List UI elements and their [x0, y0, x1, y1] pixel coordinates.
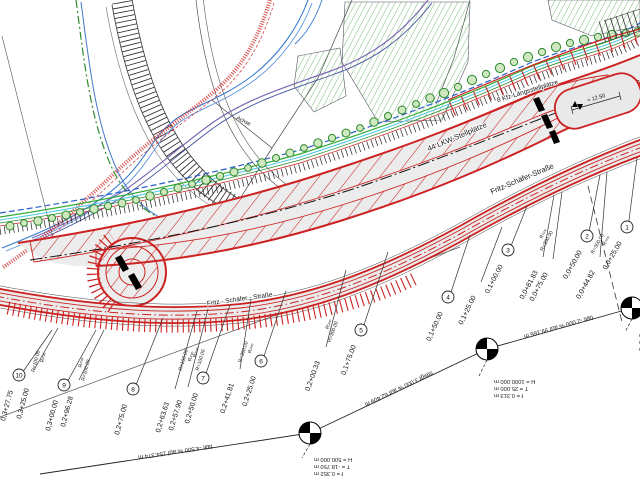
- station-label: 0,2+96.28: [60, 396, 75, 428]
- tree-icon: [398, 106, 406, 114]
- tree-icon: [273, 155, 280, 162]
- tree-icon: [495, 63, 504, 72]
- tree-icon: [49, 215, 56, 222]
- tree-icon: [579, 35, 588, 44]
- svg-text:f = 0.313 m: f = 0.313 m: [494, 392, 523, 398]
- tree-icon: [594, 33, 601, 40]
- tree-icon: [439, 88, 448, 97]
- station-number: 3: [506, 247, 510, 254]
- tree-icon: [161, 189, 168, 196]
- tree-icon: [230, 168, 238, 176]
- station-label: 0,1+00.00: [484, 264, 505, 295]
- tree-icon: [104, 202, 111, 209]
- tree-icon: [413, 101, 420, 108]
- svg-text:f = 0.352 m: f = 0.352 m: [314, 470, 343, 476]
- station-circle: 2: [581, 230, 593, 242]
- station-label: 0,3+00.00: [45, 400, 60, 432]
- tree-icon: [189, 181, 196, 188]
- tree-icon: [426, 94, 434, 102]
- tree-icon: [245, 165, 252, 172]
- station-number: 9: [62, 382, 66, 389]
- tree-icon: [385, 113, 392, 120]
- benchmark-symbol: [299, 422, 321, 444]
- site-plan-sheet: ≈ 12.50 10 0,3+27.75 0,3+25.00 R=100.00 …: [0, 0, 640, 480]
- station-circle: 1: [621, 221, 633, 233]
- svg-text:T = 25.000 m: T = 25.000 m: [494, 385, 528, 391]
- tree-icon: [258, 159, 266, 167]
- tree-icon: [133, 197, 140, 204]
- tree-icon: [314, 139, 322, 147]
- station-label: 0,3+25.00: [16, 388, 31, 420]
- station-label: 0,2+41.81: [220, 382, 236, 414]
- station-number: 7: [201, 375, 205, 382]
- gradient-label: fällt -4.500 % auf 154.374 m: [138, 442, 213, 459]
- station-number: 8: [131, 386, 135, 393]
- station-label: 0,2+75.00: [114, 404, 129, 436]
- svg-text:T = -18.750 m: T = -18.750 m: [314, 463, 350, 469]
- tree-icon: [510, 58, 517, 65]
- tree-icon: [538, 48, 545, 55]
- tree-icon: [202, 176, 210, 184]
- station-number: 10: [15, 372, 23, 379]
- station-label: 0,1+50.00: [426, 311, 445, 343]
- station-circle: 3: [502, 244, 514, 256]
- tree-icon: [77, 209, 84, 216]
- station-circle: 10: [13, 369, 25, 381]
- station-circle: 9: [58, 379, 70, 391]
- station-circle: 6: [255, 355, 267, 367]
- station-circle: 5: [355, 324, 367, 336]
- tree-icon: [328, 134, 335, 141]
- tree-icon: [370, 118, 378, 126]
- tree-icon: [6, 222, 14, 230]
- station-label: 0,2+50.00: [184, 392, 200, 424]
- station-circle: 4: [442, 291, 454, 303]
- station-label: 0,3+27.75: [0, 390, 15, 422]
- tree-icon: [467, 75, 476, 84]
- tree-icon: [118, 199, 126, 207]
- tree-icon: [62, 211, 70, 219]
- curve-block-2: H = 1000.000 m T = 25.000 m f = 0.313 m: [494, 378, 536, 398]
- benchmark-symbol: [476, 338, 498, 360]
- tree-icon: [551, 42, 560, 51]
- station-number: 4: [446, 294, 450, 301]
- tree-icon: [174, 184, 182, 192]
- station-circle: 7: [197, 372, 209, 384]
- station-label: 0,1+75.00: [341, 344, 358, 376]
- station-number: 5: [359, 327, 363, 334]
- tree-icon: [454, 83, 461, 90]
- station-label: 0,0+50.00: [562, 249, 583, 280]
- tree-icon: [34, 217, 42, 225]
- station-number: 1: [625, 224, 629, 231]
- tree-icon: [286, 149, 294, 157]
- tree-icon: [146, 192, 154, 200]
- svg-text:H = 1000.000 m: H = 1000.000 m: [494, 378, 536, 384]
- tree-icon: [482, 70, 489, 77]
- tree-icon: [301, 145, 308, 152]
- station-number: 2: [585, 233, 589, 240]
- station-label: 0,2+00.33: [305, 360, 322, 392]
- site-plan-drawing: ≈ 12.50 10 0,3+27.75 0,3+25.00 R=100.00 …: [0, 0, 640, 480]
- station-label: 0,2+25.00: [242, 375, 258, 407]
- tree-icon: [523, 52, 532, 61]
- tree-icon: [357, 125, 364, 132]
- station-label: 0,1+25.00: [458, 295, 478, 326]
- benchmark-symbol: [621, 297, 640, 319]
- station-number: 6: [259, 358, 263, 365]
- tree-icon: [566, 39, 573, 46]
- curve-block-1: H = 500.000 m T = -18.750 m f = 0.352 m: [314, 456, 352, 476]
- svg-text:H = 500.000 m: H = 500.000 m: [314, 456, 352, 462]
- station-label: 0,0+44.82: [575, 269, 596, 300]
- tree-icon: [342, 129, 350, 137]
- tree-icon: [216, 172, 223, 179]
- station-circle: 8: [127, 383, 139, 395]
- gradient-label: fällt -2.000 % auf 99.166 m: [523, 313, 594, 338]
- tree-icon: [21, 220, 28, 227]
- radius-label: R=∞: [40, 352, 49, 364]
- tree-icon: [90, 205, 98, 213]
- gradient-label: steigt 3.000 % auf 62.409 m: [363, 369, 433, 406]
